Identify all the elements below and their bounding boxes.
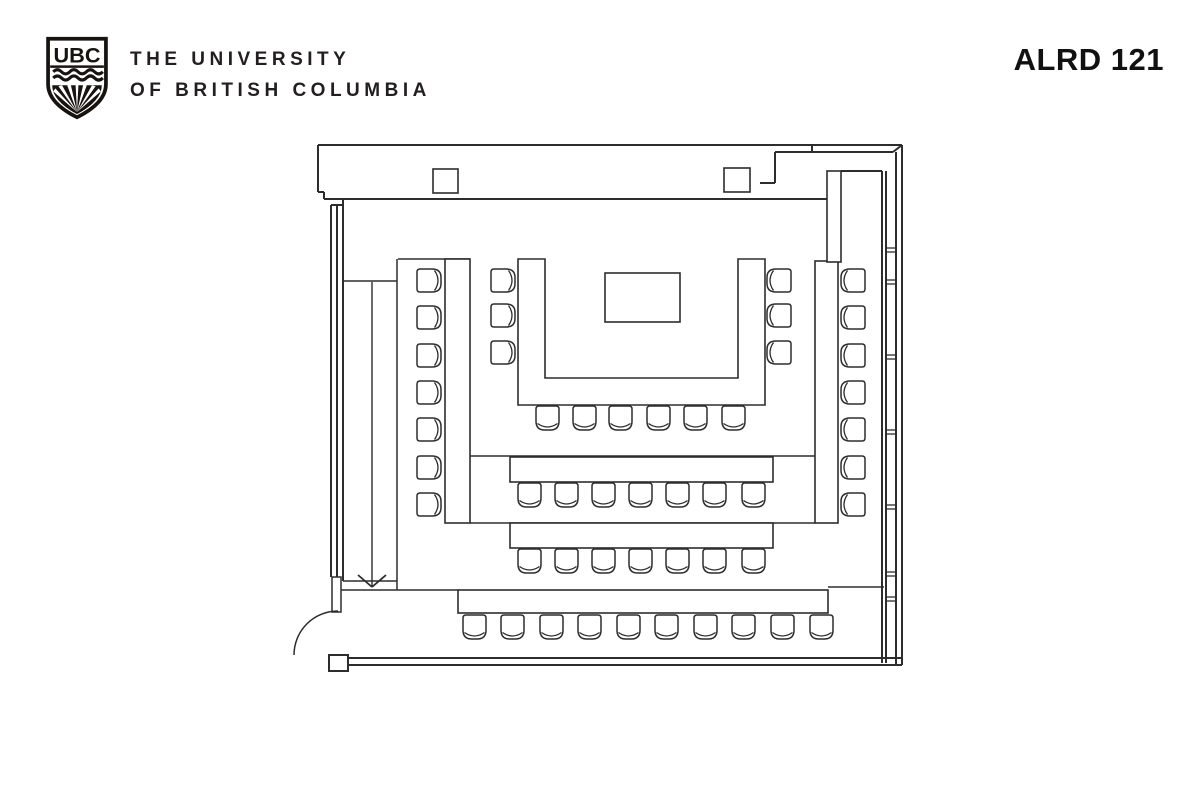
chair <box>417 269 441 292</box>
chair <box>841 456 865 479</box>
chair <box>647 406 670 430</box>
chair <box>463 615 486 639</box>
row-3-table <box>510 523 773 548</box>
door-swing-arc <box>294 611 338 655</box>
chair <box>767 304 791 327</box>
chair <box>742 483 765 507</box>
chair <box>417 418 441 441</box>
chair <box>501 615 524 639</box>
chair <box>417 456 441 479</box>
podium-table <box>605 273 680 322</box>
chair <box>841 493 865 516</box>
chair <box>703 483 726 507</box>
chair <box>592 483 615 507</box>
chair <box>841 306 865 329</box>
chair <box>518 549 541 573</box>
chair <box>609 406 632 430</box>
left-side-table <box>445 259 470 523</box>
chair <box>491 304 515 327</box>
row-2-table <box>510 457 773 482</box>
chair <box>536 406 559 430</box>
chair <box>666 549 689 573</box>
chair <box>742 549 765 573</box>
chair <box>629 483 652 507</box>
chair <box>629 549 652 573</box>
right-side-table <box>815 261 838 523</box>
chair <box>767 341 791 364</box>
chair <box>592 549 615 573</box>
chair <box>540 615 563 639</box>
page: UBC THE UNIVERSITY OF BRITISH COLUMBIA <box>0 0 1200 800</box>
floor-plan <box>0 0 1200 800</box>
wall-line <box>893 145 902 152</box>
chair <box>417 306 441 329</box>
chair <box>578 615 601 639</box>
chair <box>518 483 541 507</box>
chair <box>732 615 755 639</box>
chair <box>703 549 726 573</box>
chair <box>694 615 717 639</box>
chair <box>491 341 515 364</box>
column <box>433 169 458 193</box>
column <box>724 168 750 192</box>
chair <box>666 483 689 507</box>
chair <box>810 615 833 639</box>
chair <box>684 406 707 430</box>
chair <box>417 381 441 404</box>
chair <box>417 493 441 516</box>
door-leaf <box>332 577 341 612</box>
chair <box>491 269 515 292</box>
chair <box>417 344 441 367</box>
back-table <box>458 590 828 613</box>
chair <box>767 269 791 292</box>
wall-connector <box>827 171 841 262</box>
chair <box>655 615 678 639</box>
chair <box>771 615 794 639</box>
chair <box>722 406 745 430</box>
wall-end-cap <box>329 655 348 671</box>
chair <box>573 406 596 430</box>
chair <box>841 269 865 292</box>
chair <box>841 344 865 367</box>
chair <box>555 483 578 507</box>
chair <box>617 615 640 639</box>
chair <box>555 549 578 573</box>
chair <box>841 381 865 404</box>
chair <box>841 418 865 441</box>
